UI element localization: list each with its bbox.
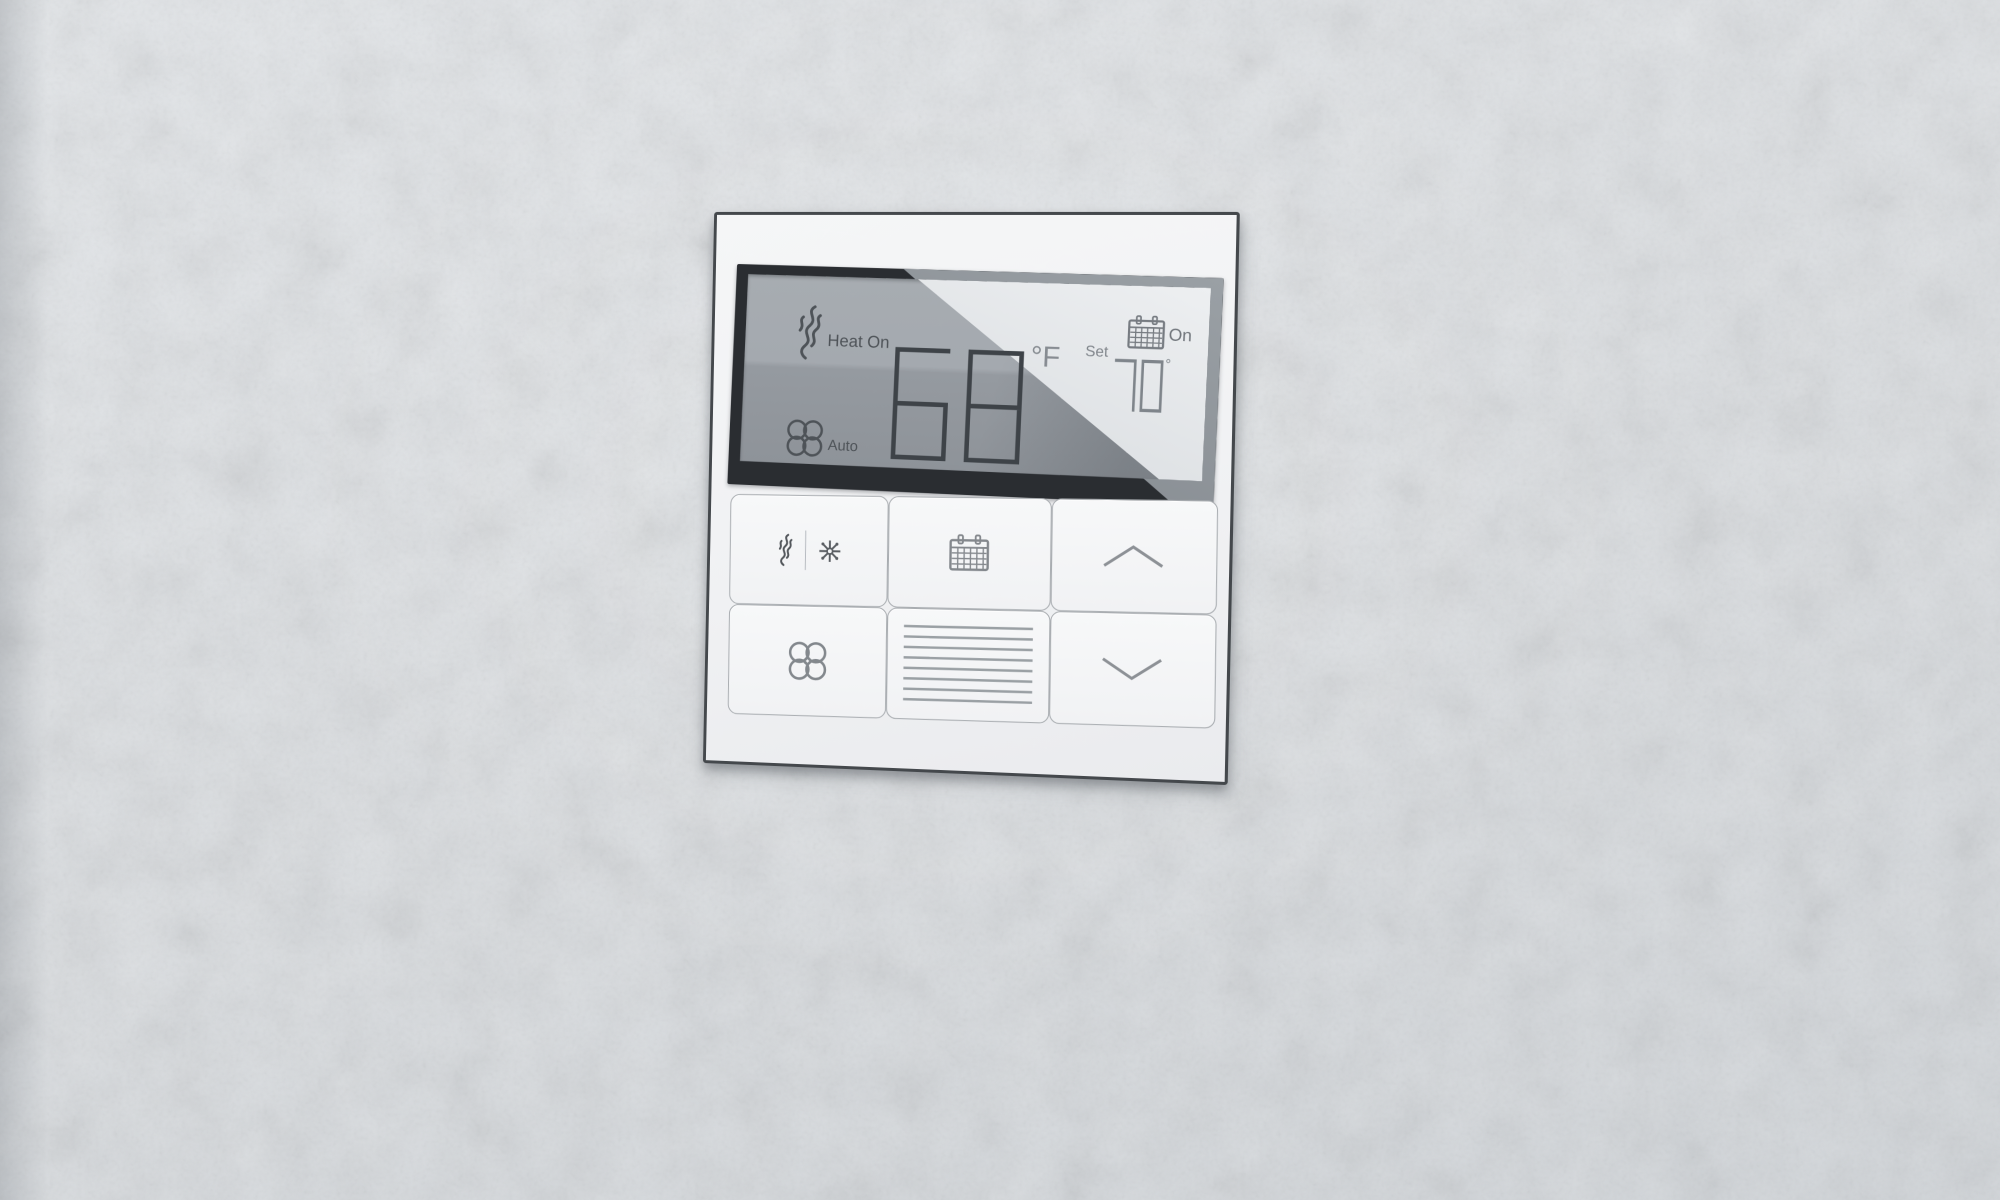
menu-button[interactable] — [886, 607, 1050, 723]
thermostat-display-bezel: Heat On Auto °F — [727, 264, 1223, 506]
temp-unit-label: °F — [1030, 343, 1061, 373]
calendar-icon — [948, 533, 990, 574]
current-temp-digits — [888, 344, 1027, 467]
horizontal-lines-icon — [900, 623, 1036, 709]
fan-mode-label: Auto — [827, 438, 858, 454]
flame-icon — [790, 303, 826, 361]
schedule-calendar-icon — [1126, 314, 1166, 352]
mode-divider — [805, 531, 807, 571]
thermostat-device: Heat On Auto °F — [703, 212, 1240, 785]
snowflake-icon — [817, 537, 844, 564]
set-temp-digits — [1112, 358, 1164, 414]
temp-up-button[interactable] — [1050, 498, 1218, 614]
mode-button[interactable] — [729, 494, 889, 607]
flame-icon — [774, 533, 795, 567]
fan-button[interactable] — [728, 604, 888, 719]
set-label: Set — [1085, 344, 1109, 360]
fan-icon — [786, 639, 829, 684]
chevron-down-icon — [1098, 654, 1166, 684]
schedule-button[interactable] — [888, 496, 1052, 611]
set-degree-label: ° — [1165, 357, 1171, 371]
wall-background: { "device": { "type": "wall thermostat" … — [0, 0, 2000, 1200]
thermostat-lcd: Heat On Auto °F — [740, 274, 1211, 481]
button-grid — [728, 494, 1219, 729]
thermostat-panel: Heat On Auto °F — [703, 212, 1240, 785]
chevron-up-icon — [1100, 541, 1168, 571]
temp-down-button[interactable] — [1049, 611, 1217, 729]
heat-status-label: Heat On — [827, 332, 890, 351]
schedule-status-label: On — [1168, 326, 1192, 344]
fan-auto-icon — [783, 416, 828, 459]
